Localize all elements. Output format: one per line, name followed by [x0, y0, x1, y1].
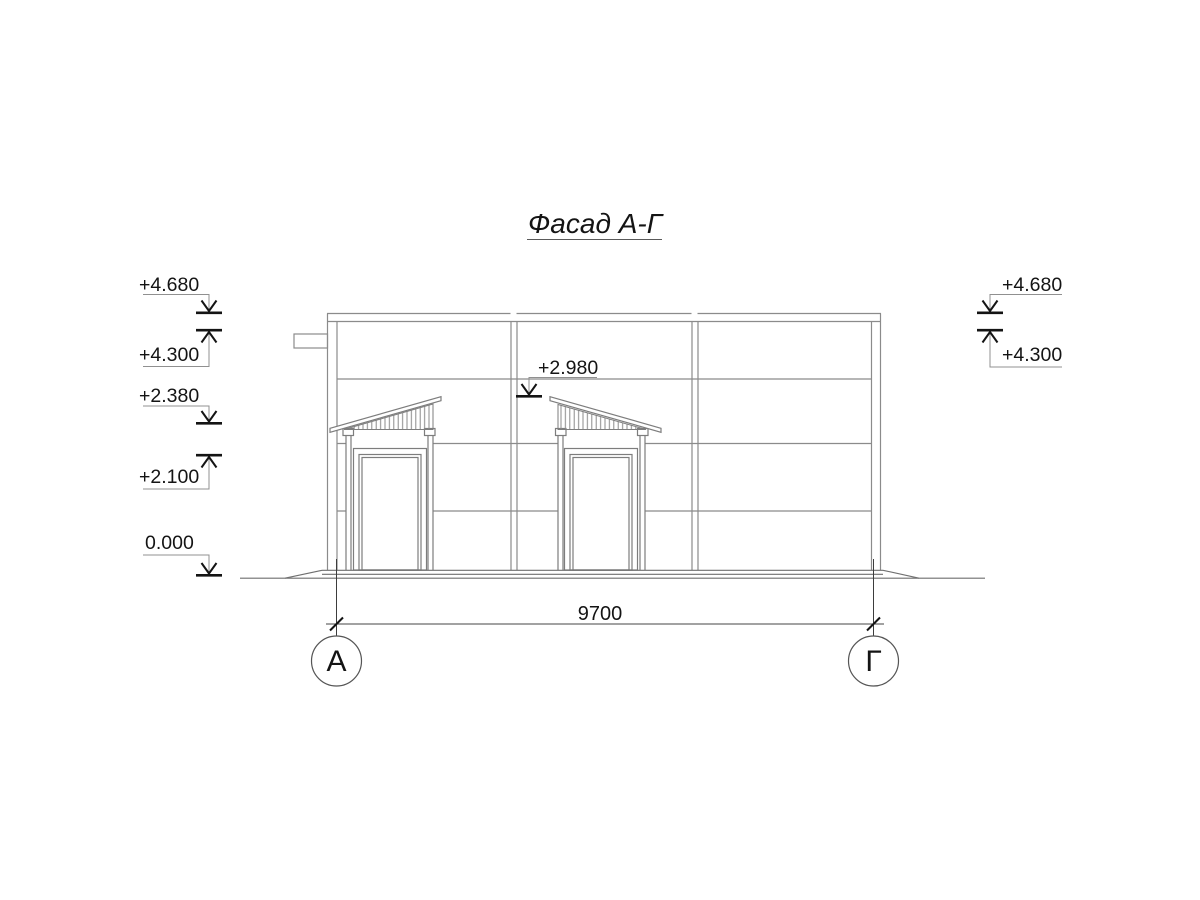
door-right-leaf-inner [573, 458, 629, 571]
right-wall [872, 314, 881, 571]
left-wall [328, 314, 338, 571]
door-left-leaf-outer [359, 455, 421, 571]
title-text: Фасад А-Г [528, 208, 664, 239]
column-1 [511, 322, 517, 571]
elevation-marker-left-2100: +2.100 [139, 455, 222, 489]
canopy-left [330, 397, 441, 433]
door-right-frame [565, 449, 638, 571]
elevation-marker-canopy-2980: +2.980 [516, 357, 598, 396]
elevation-marker-left-4300: +4.300 [139, 330, 222, 366]
elevation-label: +2.100 [139, 466, 199, 488]
door-left-frame [354, 449, 427, 571]
axis-bubbles: А Г [312, 636, 899, 686]
door-left [343, 429, 435, 571]
elevation-label: +4.300 [139, 344, 199, 366]
column-2 [692, 322, 698, 571]
elevation-markers-left: +4.680 +4.300 +2.380 +2.100 0.00 [139, 274, 222, 575]
leader-line [529, 378, 597, 395]
dimension-value: 9700 [578, 603, 623, 625]
leader-line [143, 555, 209, 574]
drawing-title: Фасад А-Г [527, 208, 664, 240]
elevation-markers-right: +4.680 +4.300 [977, 274, 1062, 367]
elevation-marker-right-4680: +4.680 [977, 274, 1062, 313]
apron-left [285, 570, 322, 578]
drawing-sheet: А Г 9700 +4.680 +4.300 +2.380 [0, 0, 1200, 900]
elevation-marker-left-0000: 0.000 [143, 532, 222, 575]
canopy-left-hatch [344, 404, 433, 430]
door-right [556, 429, 649, 571]
facade-drawing: А Г 9700 +4.680 +4.300 +2.380 [0, 0, 1200, 900]
elevation-marker-left-2380: +2.380 [139, 385, 222, 423]
elevation-label: +2.980 [538, 357, 598, 379]
canopy-right [550, 397, 661, 433]
leader-line [143, 406, 209, 422]
elevation-marker-left-4680: +4.680 [139, 274, 222, 313]
elevation-label: +4.680 [139, 274, 199, 296]
elevation-label: 0.000 [145, 532, 194, 554]
building-outline [294, 314, 881, 571]
leader-line [990, 295, 1062, 312]
left-wall-protrusion [294, 334, 328, 348]
elevation-label: +4.300 [1002, 344, 1062, 366]
axis-label-a: А [326, 645, 346, 678]
elevation-label: +2.380 [139, 385, 199, 407]
canopy-right-hatch [558, 405, 646, 430]
leader-line [143, 295, 209, 312]
elevation-marker-right-4300: +4.300 [977, 330, 1062, 367]
axis-label-g: Г [865, 645, 881, 678]
elevation-label: +4.680 [1002, 274, 1062, 296]
door-left-leaf-inner [362, 458, 418, 571]
dimension-9700: 9700 [326, 603, 884, 631]
apron-right [883, 570, 919, 578]
door-right-leaf-outer [570, 455, 632, 571]
